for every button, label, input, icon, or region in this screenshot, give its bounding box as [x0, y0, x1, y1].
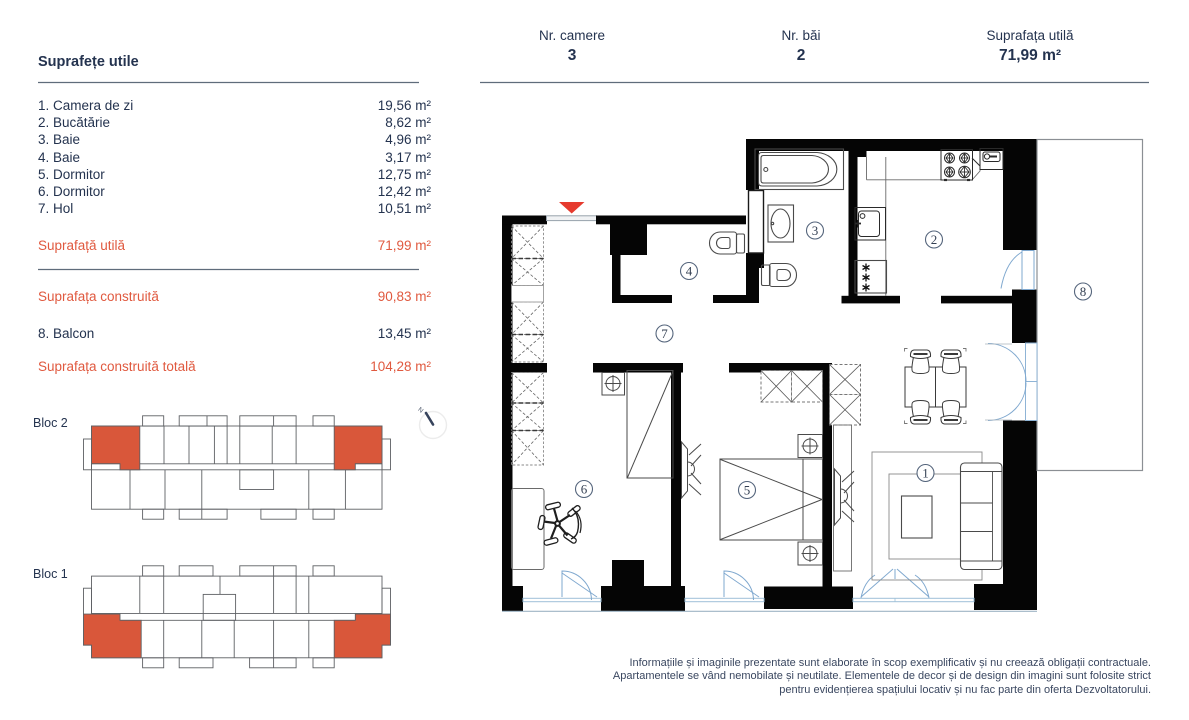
- svg-text:4: 4: [686, 264, 693, 279]
- svg-text:5: 5: [744, 483, 751, 498]
- svg-text:7: 7: [661, 326, 668, 341]
- svg-text:3: 3: [812, 223, 819, 238]
- svg-text:1: 1: [922, 466, 929, 481]
- svg-text:N: N: [416, 406, 424, 415]
- svg-text:2: 2: [931, 232, 938, 247]
- svg-text:6: 6: [581, 482, 588, 497]
- svg-text:8: 8: [1080, 284, 1087, 299]
